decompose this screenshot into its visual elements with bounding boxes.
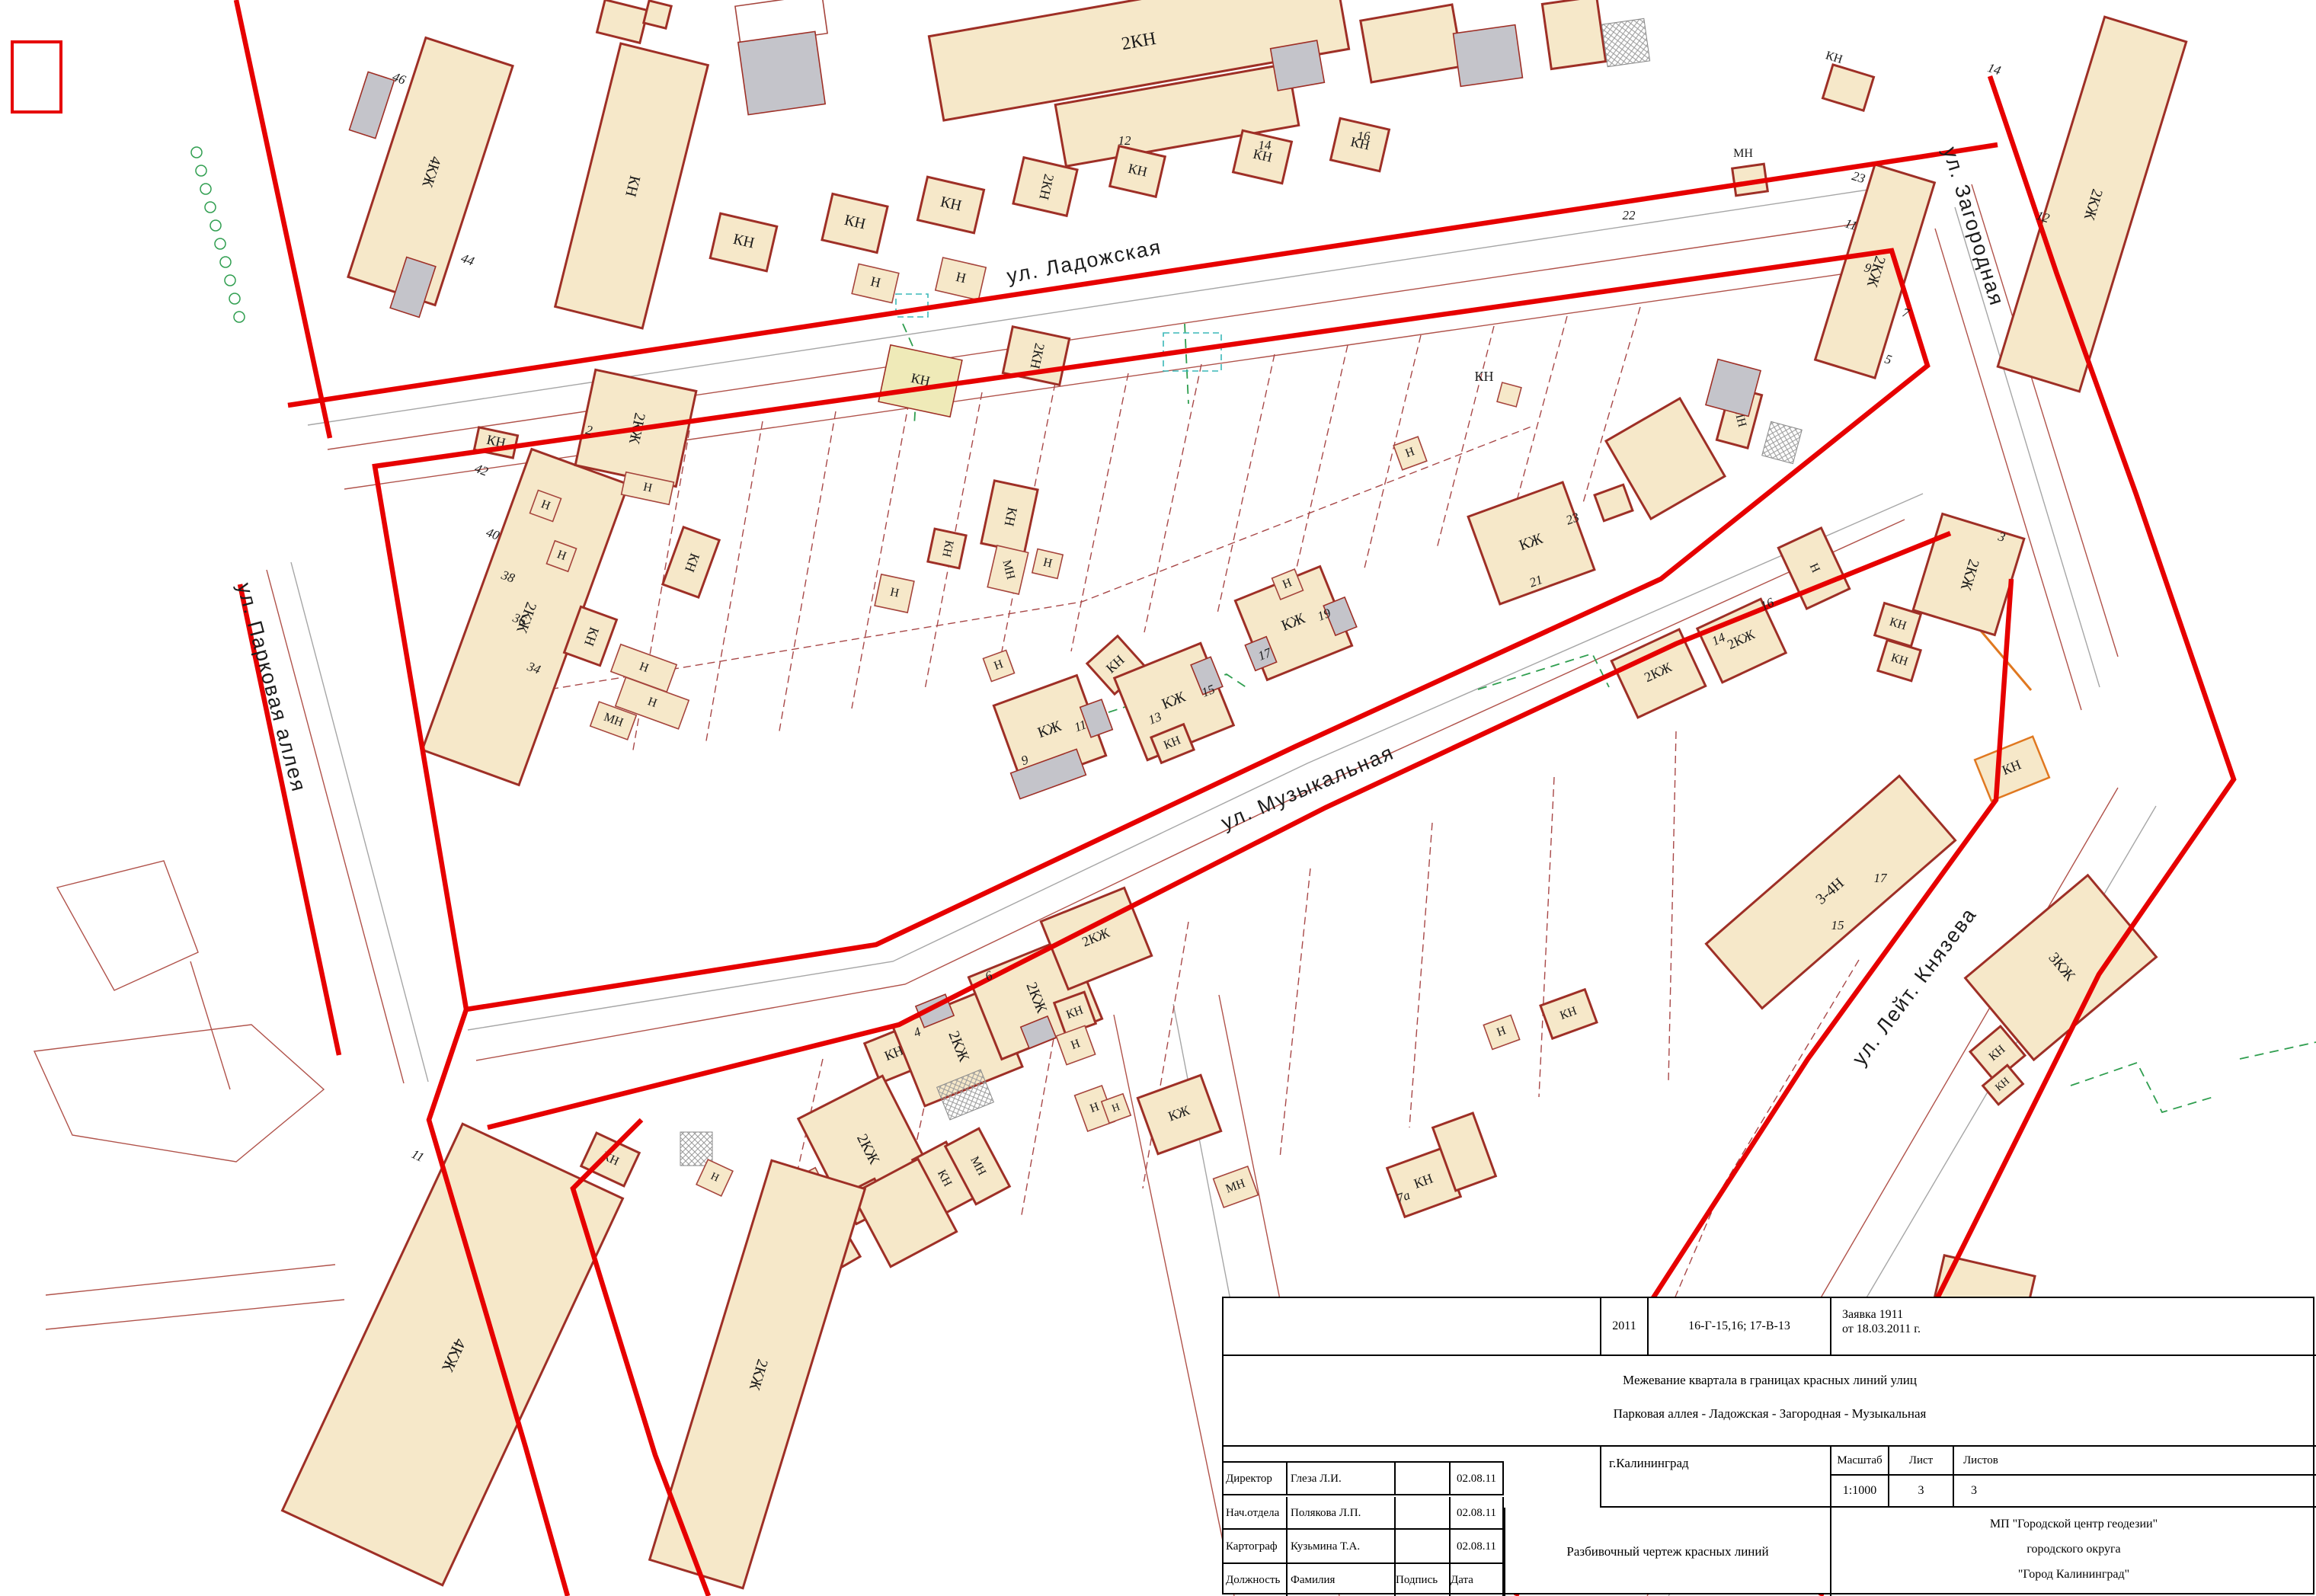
request-line1: Заявка 1911 [1842,1307,2316,1322]
thin-red-line [46,1265,335,1295]
street-name-label: ул. Лейт. Князева [1847,903,1981,1070]
building [644,1,671,28]
house-number: 15 [1831,918,1844,932]
thin-red-line [476,520,1905,1060]
tree-symbol [229,293,240,304]
subject-cell: Межевание квартала в границах красных ли… [1224,1356,2316,1447]
parcel-boundary-line [1217,354,1275,613]
building [597,0,648,43]
tree-symbol [220,257,231,267]
tree-symbol [234,312,245,322]
street-name-label: ул. Парковая аллея [233,581,311,795]
tree-symbol [196,165,206,176]
red-boundary-rect [12,42,61,112]
request-cell: Заявка 1911 от 18.03.2011 г. [1831,1298,2316,1356]
building [1542,0,1605,69]
tree-symbol [225,275,235,286]
parcel-boundary-line [1668,731,1676,1082]
building-label: МН [1733,147,1753,160]
parcel-boundary-line [779,411,836,735]
date-cell: 02.08.11 [1451,1530,1504,1564]
building [1822,65,1873,110]
date-cell: 02.08.11 [1451,1497,1504,1530]
house-number: 12 [1118,133,1132,148]
thin-red-line [267,570,404,1083]
building [1271,40,1325,91]
scale-label-cell: Масштаб [1831,1447,1889,1476]
subject-line2: Парковая аллея - Ладожская - Загородная … [1224,1406,2316,1422]
street-centerline [291,562,428,1082]
request-line2: от 18.03.2011 г. [1842,1322,2316,1336]
red-line [236,0,330,438]
name-cell: Полякова Л.П. [1288,1497,1396,1530]
tree-symbol [200,184,211,194]
date-header-cell: Дата [1451,1564,1504,1596]
tree-symbol [191,147,202,158]
drawing-sheet: 4КЖКН2КН2КЖ2КЖКНКНКН2КНКНКНКНННКН2КЖННКН… [0,0,2316,1596]
house-number: 14 [1259,138,1272,152]
house-number: 14 [1986,60,2003,78]
red-line [488,533,1950,1127]
thin-red-line [34,1025,324,1162]
sign-cell [1396,1497,1451,1530]
quarter-code-cell: 16-Г-15,16; 17-В-13 [1649,1298,1831,1356]
building [1762,421,1802,463]
role-cell: Нач.отдела [1224,1497,1288,1530]
role-cell: Картограф [1224,1530,1288,1564]
parcel-boundary-line [1280,868,1310,1158]
sheets-label-cell: Листов [1954,1447,2316,1476]
sheet-label-cell: Лист [1889,1447,1954,1476]
title-block: 2011 16-Г-15,16; 17-В-13 Заявка 1911 от … [1222,1297,2314,1594]
building [350,72,395,138]
building [1361,5,1463,82]
building [1497,382,1521,407]
drawing-title-cell: Разбивочный чертеж красных линий [1504,1508,1831,1596]
building [738,31,825,114]
date-cell: 02.08.11 [1451,1461,1504,1495]
building [1601,18,1649,66]
parcel-boundary-line [1291,345,1348,594]
org-line1: МП "Городской центр геодезии" [1831,1517,2316,1531]
subject-line1: Межевание квартала в границах красных ли… [1224,1373,2316,1388]
tree-symbol [215,238,226,249]
building [1595,485,1633,521]
building [1454,25,1523,87]
org-line3: "Город Калининград" [1831,1567,2316,1582]
role-header-cell: Должность [1224,1564,1288,1596]
building-label: КН [1824,49,1844,66]
parcel-boundary-line [1144,364,1201,632]
year-cell: 2011 [1601,1298,1649,1356]
thin-red-line [46,1300,344,1329]
house-number: 22 [1623,208,1636,222]
sheets-value-cell: 3 [1954,1476,2316,1508]
vegetation-boundary-line [1185,324,1188,404]
parcel-boundary-line [1071,373,1128,651]
sign-header-cell: Подпись [1396,1564,1451,1596]
thin-red-line [190,961,230,1089]
house-number: 42 [473,461,491,479]
house-number: 16 [1358,129,1371,143]
name-cell: Глеза Л.И. [1288,1461,1396,1495]
organization-cell: МП "Городской центр геодезии" городского… [1831,1508,2316,1596]
tree-symbol [210,220,221,231]
building-label: КН [1474,369,1493,384]
thin-red-line [57,861,198,990]
tree-symbol [205,202,216,213]
house-number: 5 [1883,351,1894,367]
vegetation-boundary-line [2240,1042,2316,1059]
sign-cell [1396,1530,1451,1564]
org-line2: городского округа [1831,1542,2316,1556]
house-number: 44 [459,251,477,269]
name-header-cell: Фамилия [1288,1564,1396,1596]
role-cell: Директор [1224,1461,1288,1495]
scale-value-cell: 1:1000 [1831,1476,1889,1508]
house-number: 23 [1851,168,1867,186]
sheet-value-cell: 3 [1889,1476,1954,1508]
street-name-label: ул. Ладожская [1005,235,1163,288]
title-block-empty-cell [1224,1298,1601,1356]
parcel-boundary-line [705,421,763,745]
street-centerline [308,183,1914,425]
house-number: 11 [409,1147,426,1165]
sign-cell [1396,1461,1451,1495]
city-cell: г.Калининград [1601,1447,1831,1508]
parcel-boundary-line [852,402,909,708]
street-name-label: ул. Загородная [1939,144,2009,309]
parcel-boundary-line [1539,777,1554,1097]
name-cell: Кузьмина Т.А. [1288,1530,1396,1564]
vegetation-boundary-line [2071,1063,2213,1112]
parcel-boundary-line [1409,823,1432,1127]
house-number: 17 [1874,871,1889,885]
